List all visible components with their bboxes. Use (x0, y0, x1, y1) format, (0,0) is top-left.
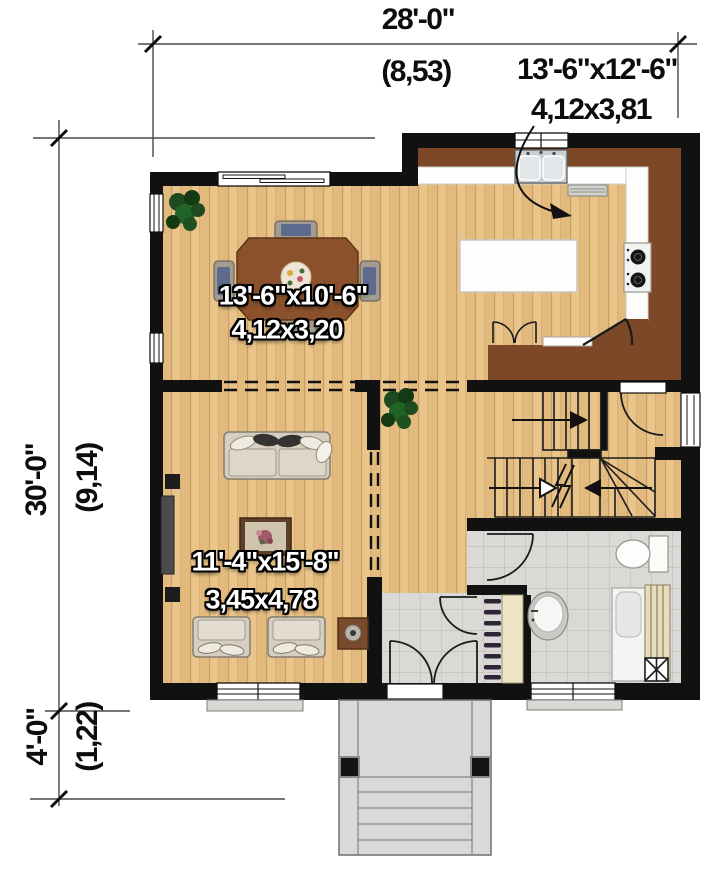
shower-bench (645, 585, 670, 681)
living-window-sill (207, 700, 303, 711)
porch-depth-metric-label: (1,22) (73, 702, 103, 771)
dish-rack (568, 185, 607, 196)
armchair-right (268, 617, 325, 657)
back-door-panel (620, 382, 666, 393)
pedestal-sink (528, 592, 568, 640)
hatch-box (645, 658, 668, 681)
stove (624, 243, 651, 292)
front-door-panel (387, 684, 443, 699)
kitchen-size-imperial-label: 13'-6"x12'-6" (517, 55, 677, 85)
living-size-metric-label: 3,45x4,78 (205, 587, 316, 614)
bathroom-bottom-window (531, 683, 615, 700)
living-size-imperial-label: 11'-4"x15'-8" (191, 549, 338, 576)
overall-depth-imperial-label: 30'-0" (22, 444, 52, 516)
overall-width-imperial-label: 28'-0" (382, 5, 454, 35)
armchair-left (193, 617, 250, 657)
kitchen-sink (515, 150, 567, 183)
front-porch (339, 700, 491, 855)
floor-plan-canvas (0, 0, 720, 882)
bathroom-window-sill (527, 700, 622, 710)
sofa (224, 432, 335, 479)
dining-size-imperial-label: 13'-6"x10'-6" (219, 283, 368, 310)
living-bottom-window (217, 683, 300, 700)
entry-tile-floor (382, 593, 483, 683)
side-table-lamp (338, 618, 368, 649)
dining-left-window-upper (150, 194, 163, 232)
overall-depth-metric-label: (9,14) (73, 443, 103, 512)
dining-left-window-lower (150, 333, 163, 363)
dining-top-window (218, 172, 330, 186)
kitchen-size-metric-label: 4,12x3,81 (531, 95, 651, 125)
floor-plan-page: 28'-0" (8,53) 13'-6"x12'-6" 4,12x3,81 30… (0, 0, 720, 882)
porch-depth-imperial-label: 4'-0" (23, 708, 53, 765)
bathtub (612, 588, 645, 681)
stair-landing-window (681, 393, 700, 447)
porch-column-left (340, 757, 359, 777)
overall-width-metric-label: (8,53) (381, 57, 450, 87)
kitchen-island (460, 240, 577, 292)
dining-size-metric-label: 4,12x3,20 (231, 317, 342, 344)
porch-column-right (471, 757, 490, 777)
